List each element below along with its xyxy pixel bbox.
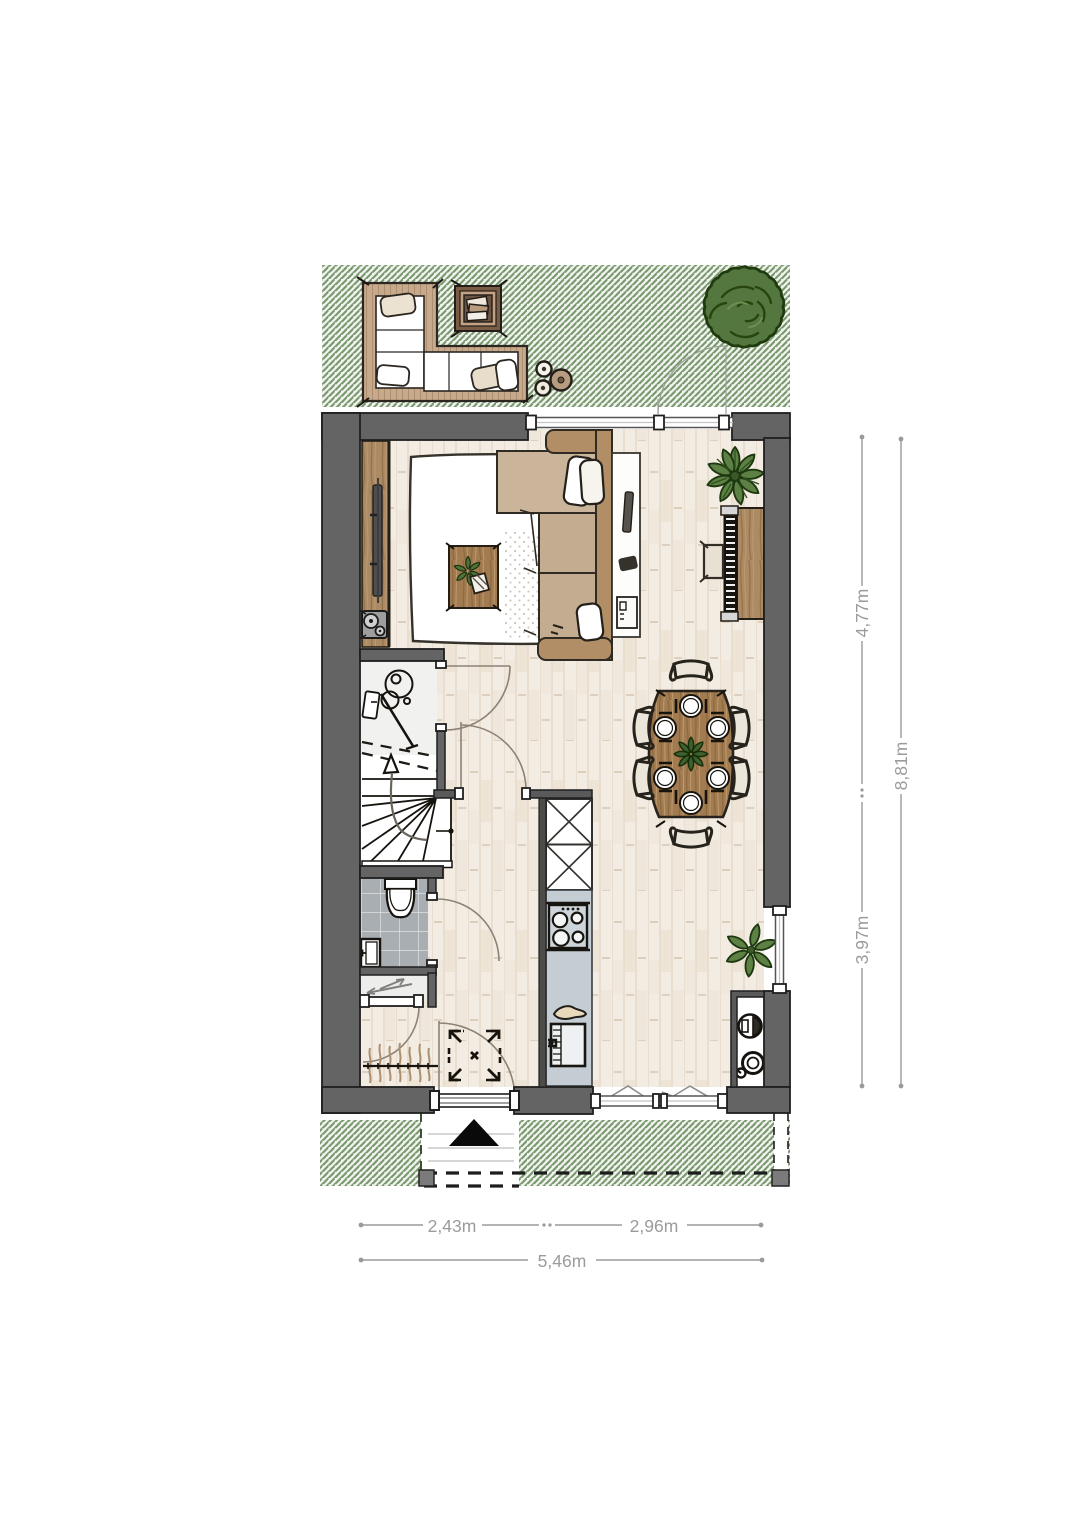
svg-text:5,46m: 5,46m: [538, 1251, 587, 1271]
svg-text:4,77m: 4,77m: [852, 589, 872, 638]
svg-text:2,43m: 2,43m: [428, 1216, 477, 1236]
svg-text:3,97m: 3,97m: [852, 916, 872, 965]
svg-text:2,96m: 2,96m: [630, 1216, 679, 1236]
svg-text:8,81m: 8,81m: [891, 742, 911, 791]
